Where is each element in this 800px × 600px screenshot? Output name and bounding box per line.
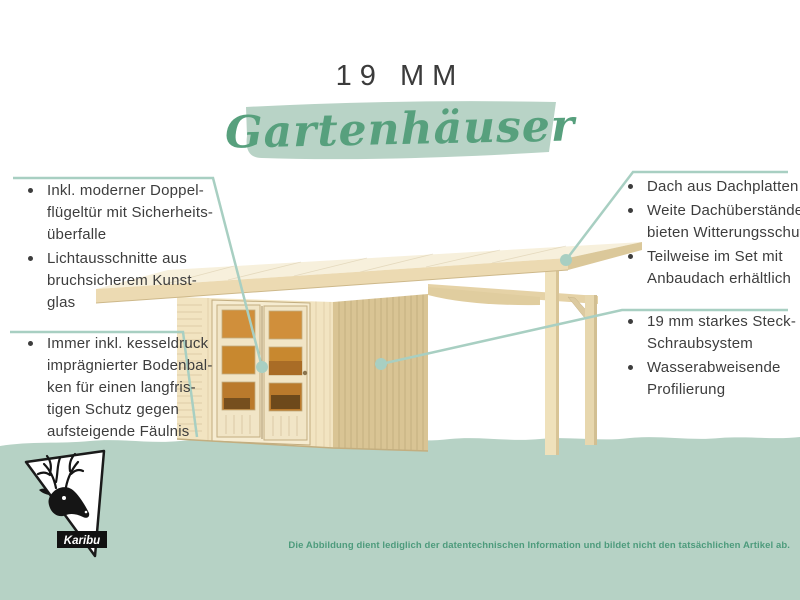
list-item: Teilweise im Set mit Anbaudach erhältlic… (628, 246, 800, 290)
callout-text-line: Lichtausschnitte aus (47, 248, 197, 270)
bullet-icon (28, 188, 33, 193)
list-item: Immer inkl. kesseldruck imprägnierter Bo… (28, 333, 213, 443)
callout-text-line: Weite Dachüberstände (647, 200, 800, 222)
callout-block-roof-features: Dach aus Dachplatten Weite Dachüberständ… (628, 176, 800, 292)
callout-text-line: Immer inkl. kesseldruck (47, 333, 213, 355)
list-item: Weite Dachüberstände bieten Witterungssc… (628, 200, 800, 244)
callout-dot-wall (375, 358, 387, 370)
callout-text-line: ken für einen langfris- (47, 377, 213, 399)
door-handle (303, 371, 307, 375)
canopy-front-post (545, 268, 559, 455)
callout-text-line: bieten Witterungsschutz (647, 222, 800, 244)
callout-text-line: Anbaudach erhältlich (647, 268, 791, 290)
panel-thickness-label: 19 MM (0, 60, 800, 93)
list-item: Lichtausschnitte aus bruchsicherem Kunst… (28, 248, 213, 314)
callout-text-line: flügeltür mit Sicherheits- (47, 202, 213, 224)
callout-block-door-features: Inkl. moderner Doppel- flügeltür mit Sic… (28, 180, 213, 316)
callout-text-line: aufsteigende Fäulnis (47, 421, 213, 443)
bullet-icon (628, 254, 633, 259)
bullet-icon (628, 319, 633, 324)
product-infographic: Karibu 19 MM Gartenhäuser Inkl. moderner… (0, 0, 800, 600)
list-item: 19 mm starkes Steck- Schraubsystem (628, 311, 796, 355)
callout-text-line: 19 mm starkes Steck- (647, 311, 796, 333)
grass-band (0, 437, 800, 600)
disclaimer-text: Die Abbildung dient lediglich der datent… (288, 540, 790, 551)
bullet-icon (628, 365, 633, 370)
callout-block-floor-beams: Immer inkl. kesseldruck imprägnierter Bo… (28, 333, 213, 445)
callout-text-line: Dach aus Dachplatten (647, 176, 799, 198)
list-item: Dach aus Dachplatten (628, 176, 800, 198)
bullet-icon (628, 208, 633, 213)
callout-text-line: glas (47, 292, 197, 314)
bullet-icon (28, 256, 33, 261)
bullet-icon (628, 184, 633, 189)
callout-text-line: Wasserabweisende (647, 357, 781, 379)
bullet-icon (28, 341, 33, 346)
callout-dot-roof (560, 254, 572, 266)
callout-text-line: tigen Schutz gegen (47, 399, 213, 421)
callout-text-line: überfalle (47, 224, 213, 246)
list-item: Wasserabweisende Profilierung (628, 357, 796, 401)
callout-text-line: Profilierung (647, 379, 781, 401)
callout-dot-door (256, 361, 268, 373)
callout-text-line: imprägnierter Bodenbal- (47, 355, 213, 377)
side-wall (333, 294, 428, 451)
logo-label: Karibu (64, 535, 100, 547)
callout-text-line: Schraubsystem (647, 333, 796, 355)
callout-text-line: Teilweise im Set mit (647, 246, 791, 268)
callout-text-line: bruchsicherem Kunst- (47, 270, 197, 292)
list-item: Inkl. moderner Doppel- flügeltür mit Sic… (28, 180, 213, 246)
callout-text-line: Inkl. moderner Doppel- (47, 180, 213, 202)
callout-block-wall-system: 19 mm starkes Steck- Schraubsystem Wasse… (628, 311, 796, 403)
